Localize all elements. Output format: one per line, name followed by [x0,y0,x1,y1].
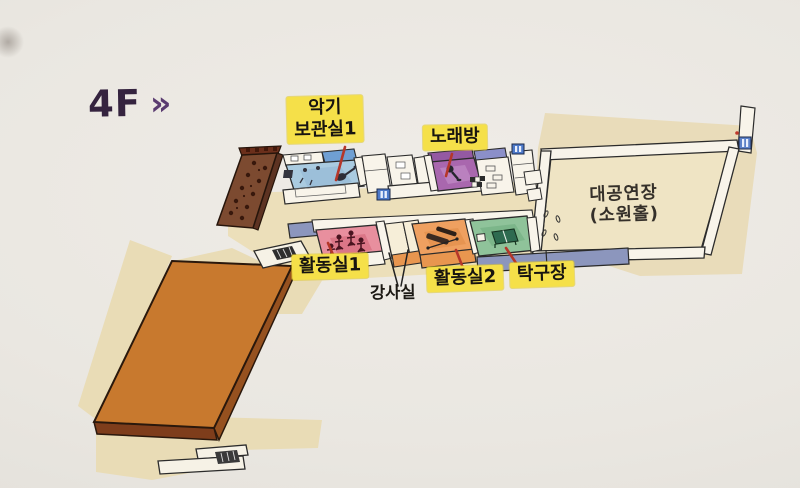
label-instrument-storage: 악기보관실1 [286,95,363,144]
label-table-tennis: 탁구장 [510,261,575,288]
chevrons-icon: » [150,86,172,119]
label-instrument-storage-line1: 악기 [308,97,342,119]
elevator-icon [377,189,390,200]
floor-label: 4F [88,82,142,126]
label-karaoke: 노래방 [423,124,487,150]
room-table-tennis [470,216,540,256]
label-activity-2: 활동실2 [427,265,504,293]
room-instrument-storage [283,149,368,204]
label-instrument-storage-line2: 보관실1 [294,118,357,142]
elevator-icon [739,137,751,149]
room-activity-2 [412,219,481,268]
label-grand-hall-line2: (소원홀) [567,203,682,228]
floor-title: 4F » [88,81,172,125]
elevator-icon [512,144,524,154]
floor-plan-drawing [0,0,800,488]
label-grand-hall: 대공연장(소원홀) [566,182,681,229]
floor-plan-photo: 4F » 악기보관실1 노래방 대공연장(소원홀) 활동실1 강사실 활동실2 … [0,0,800,488]
label-grand-hall-line1: 대공연장 [589,183,658,205]
label-instructor: 강사실 [370,283,416,304]
label-activity-1: 활동실1 [292,253,369,280]
